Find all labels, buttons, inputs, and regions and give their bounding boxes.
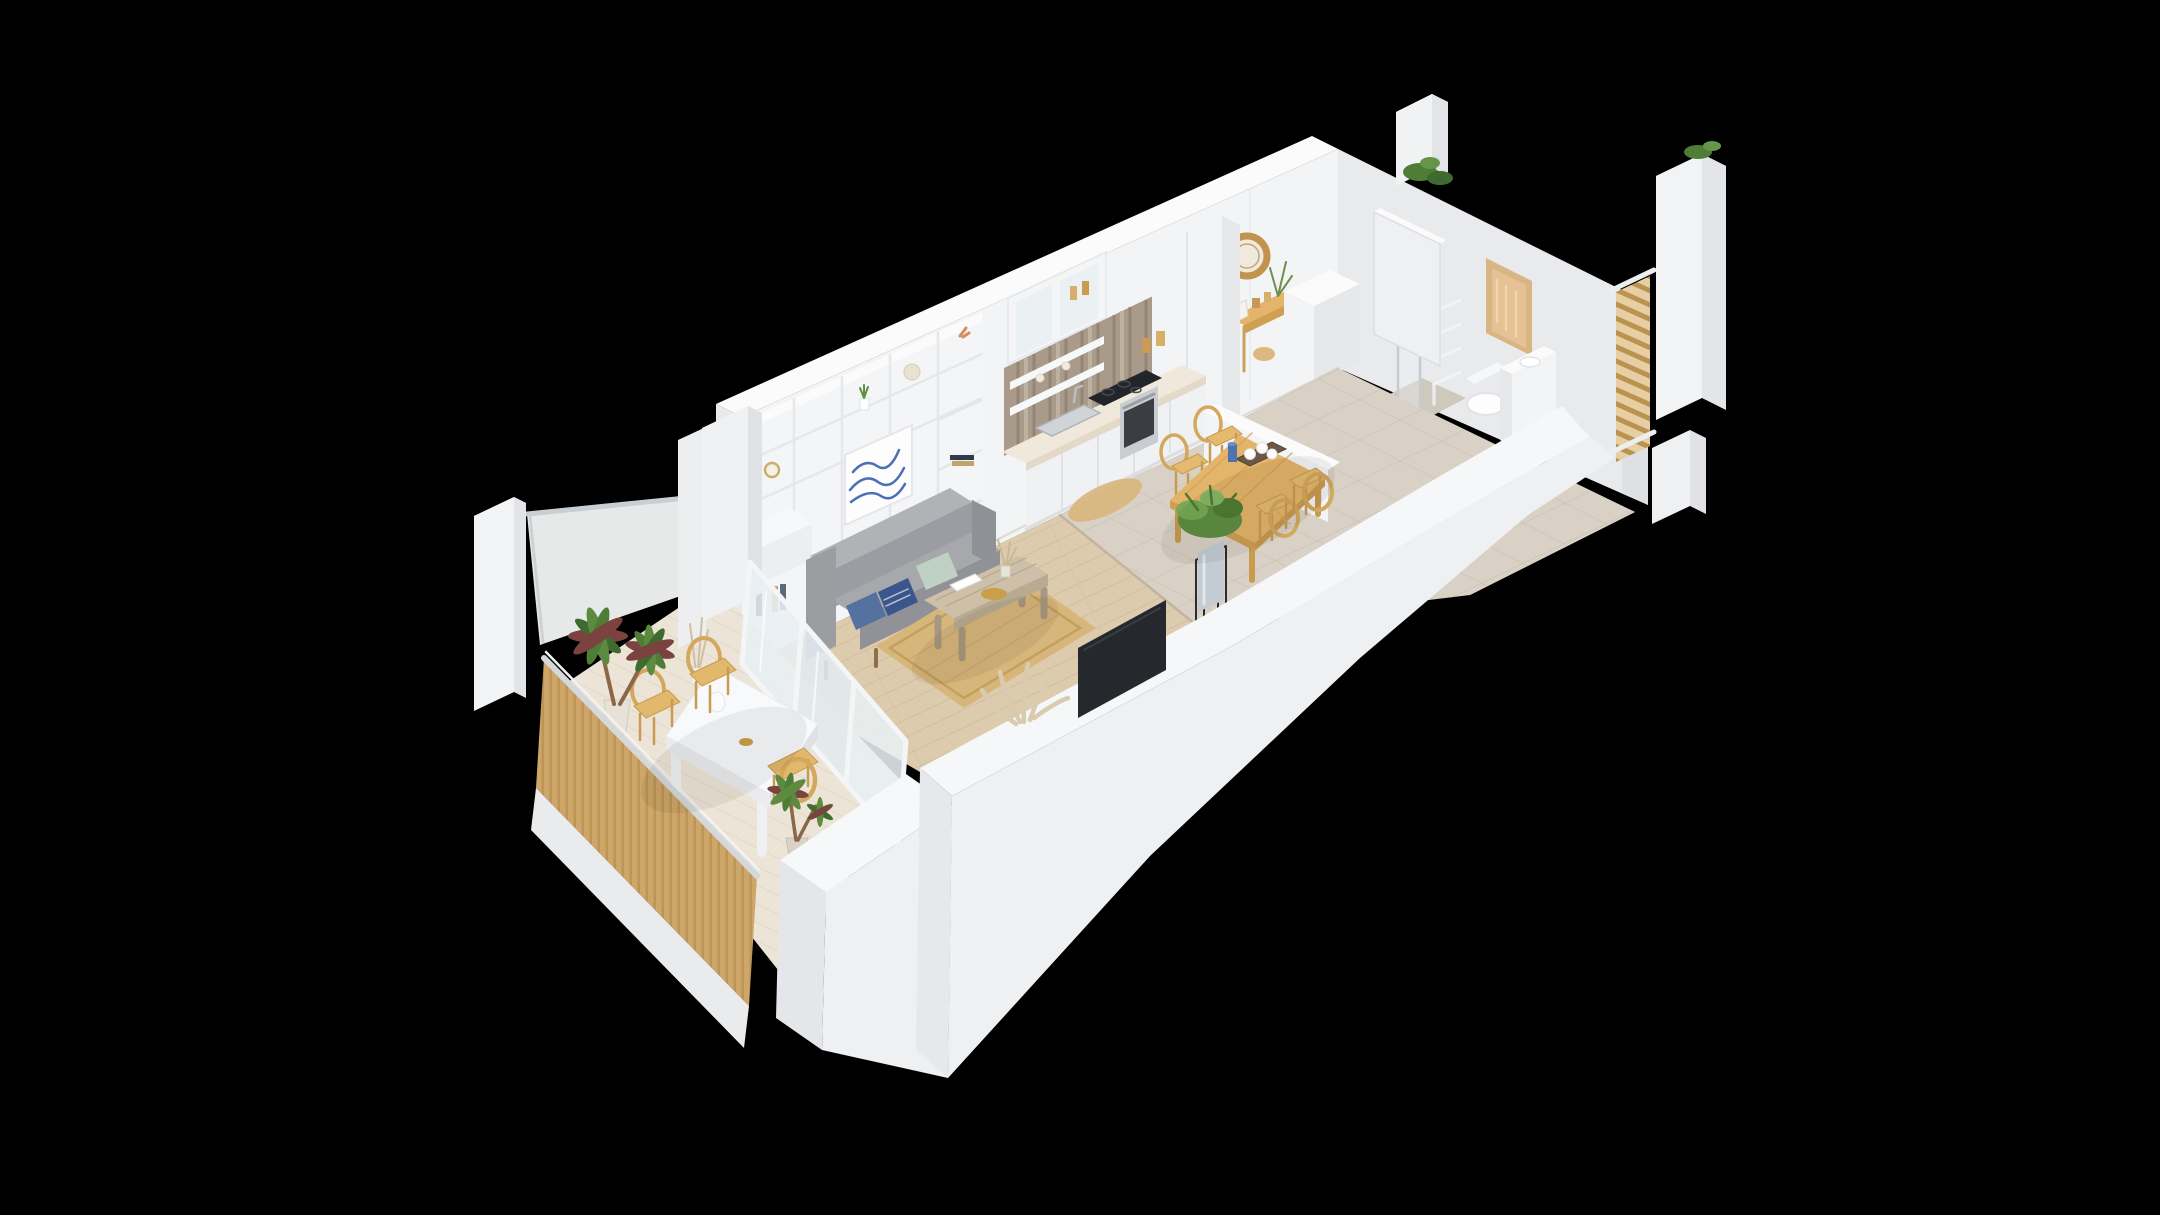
- shelf-vase: [904, 364, 920, 380]
- basket-under-console: [1253, 347, 1275, 361]
- pillar-front: [474, 497, 514, 711]
- pillar-side: [514, 497, 526, 698]
- pillar-front: [1656, 154, 1702, 420]
- cup: [1267, 449, 1277, 459]
- counter-jar: [1142, 338, 1151, 353]
- green-tuft: [1703, 141, 1721, 151]
- cup: [1257, 443, 1268, 454]
- toilet-bowl: [1467, 393, 1505, 415]
- corner-post-back: [678, 427, 706, 648]
- closet-front: [1284, 292, 1314, 384]
- render-canvas: [0, 0, 2160, 1215]
- tall-cabinet-side: [1222, 216, 1240, 434]
- west-wall-post: [702, 406, 748, 622]
- blue-bottle: [1228, 444, 1237, 462]
- bottle-top: [1228, 442, 1237, 446]
- front-wall-west-cut: [916, 768, 952, 1078]
- bowl-on-shelf-2: [1062, 362, 1070, 370]
- bowl-on-shelf: [1036, 374, 1044, 382]
- basin: [1520, 357, 1540, 367]
- white-jug: [709, 692, 725, 712]
- vanity-side: [1500, 368, 1512, 446]
- clay-pot: [1252, 298, 1260, 308]
- cup: [1245, 449, 1256, 460]
- glass-vase: [1001, 566, 1010, 577]
- green-tuft: [1427, 171, 1453, 185]
- counter-jar-2: [1156, 331, 1165, 346]
- white-closet: [1284, 270, 1360, 384]
- corner-pillar-west: [474, 497, 526, 711]
- clay-pot-2: [1264, 292, 1271, 302]
- shelf-plant-pot: [860, 398, 869, 410]
- jar-in-cabinet-2: [1082, 281, 1089, 295]
- gold-tray: [981, 588, 1007, 600]
- step-side: [776, 860, 826, 1050]
- round-wall-clock: [765, 463, 779, 477]
- juliet-wood-railing: [1612, 270, 1654, 462]
- pillar-side: [1702, 154, 1726, 410]
- floor-plan-svg: [0, 0, 2160, 1215]
- jar-in-cabinet: [1070, 286, 1077, 300]
- green-tuft: [1420, 157, 1440, 169]
- pillar-base-side: [1690, 430, 1706, 514]
